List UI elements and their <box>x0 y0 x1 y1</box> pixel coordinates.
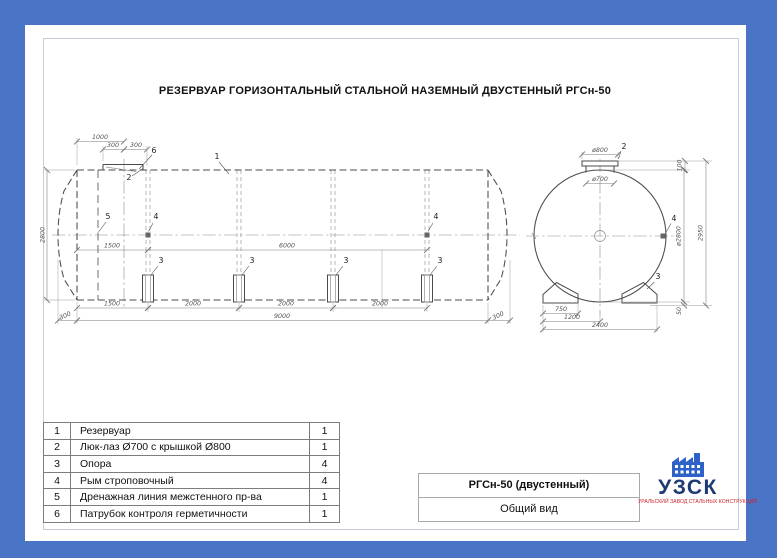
dim-sp1500: 1500 <box>104 301 120 308</box>
callout-4: 4 <box>434 212 439 221</box>
title-block: РГСн-50 (двустенный) Общий вид <box>418 473 640 522</box>
part-number: 3 <box>44 456 71 473</box>
part-number: 2 <box>44 439 71 456</box>
callout-3: 3 <box>344 256 349 265</box>
part-name: Опора <box>71 456 310 473</box>
callout-3: 3 <box>159 256 164 265</box>
dimensions-side: 1000 300 300 2800 1500 6000 <box>40 134 510 324</box>
part-qty: 1 <box>310 439 340 456</box>
dim-800: ø800 <box>591 147 608 154</box>
callout-5: 5 <box>106 212 111 221</box>
drawing-title: РЕЗЕРВУАР ГОРИЗОНТАЛЬНЫЙ СТАЛЬНОЙ НАЗЕМН… <box>60 85 710 97</box>
dim-750: 750 <box>555 306 567 313</box>
dim-300b: 300 <box>130 142 142 149</box>
callout-2-end: 2 <box>622 142 627 151</box>
dim-sp2000b: 2000 <box>278 301 294 308</box>
support-left-end-view <box>543 283 578 304</box>
factory-icon <box>670 451 706 477</box>
part-number: 5 <box>44 489 71 506</box>
callout-4-end: 4 <box>672 214 677 223</box>
dim-inner-1500: 1500 <box>104 243 120 250</box>
supports-side <box>143 275 433 302</box>
dim-300a: 300 <box>107 142 119 149</box>
callout-leaders-side <box>99 155 438 275</box>
part-number: 1 <box>44 423 71 440</box>
table-row: 1 Резервуар 1 <box>44 423 340 440</box>
technical-drawing: 6 1 2 5 4 4 3 3 3 3 1000 300 300 <box>40 125 730 355</box>
support-right-end-view <box>622 283 657 304</box>
part-name: Дренажная линия межстенного пр-ва <box>71 489 310 506</box>
dimensions-end: ø800 ø700 100 ø2800 50 2950 <box>543 147 712 332</box>
part-name: Рым строповочный <box>71 472 310 489</box>
support-axes <box>146 170 429 275</box>
dim-sp2000a: 2000 <box>185 301 201 308</box>
dim-300-right: 300 <box>491 310 505 321</box>
table-row: 5 Дренажная линия межстенного пр-ва 1 <box>44 489 340 506</box>
table-row: 6 Патрубок контроля герметичности 1 <box>44 505 340 522</box>
dim-100: 100 <box>677 159 684 171</box>
part-qty: 1 <box>310 505 340 522</box>
dim-sp2000c: 2000 <box>372 301 388 308</box>
part-name: Резервуар <box>71 423 310 440</box>
callout-6: 6 <box>152 146 157 155</box>
table-row: 4 Рым строповочный 4 <box>44 472 340 489</box>
page-background: РЕЗЕРВУАР ГОРИЗОНТАЛЬНЫЙ СТАЛЬНОЙ НАЗЕМН… <box>0 0 777 558</box>
table-row: 2 Люк-лаз Ø700 с крышкой Ø800 1 <box>44 439 340 456</box>
leader-4 <box>666 224 671 233</box>
part-qty: 4 <box>310 472 340 489</box>
dim-700: ø700 <box>591 176 608 183</box>
dim-d2800: ø2800 <box>676 226 683 247</box>
side-view: 6 1 2 5 4 4 3 3 3 3 1000 300 300 <box>40 134 520 324</box>
dim-2400: 2400 <box>592 322 608 329</box>
title-block-model: РГСн-50 (двустенный) <box>419 474 639 498</box>
table-row: 3 Опора 4 <box>44 456 340 473</box>
part-qty: 4 <box>310 456 340 473</box>
callout-4: 4 <box>154 212 159 221</box>
end-view: 2 4 3 ø800 ø700 100 ø2800 <box>526 142 712 332</box>
lifting-lug-left <box>146 233 151 238</box>
parts-table: 1 Резервуар 1 2 Люк-лаз Ø700 с крышкой Ø… <box>43 422 340 523</box>
dim-2950: 2950 <box>698 225 705 241</box>
leader-3 <box>647 282 655 289</box>
part-number: 4 <box>44 472 71 489</box>
part-number: 6 <box>44 505 71 522</box>
part-qty: 1 <box>310 489 340 506</box>
callout-2: 2 <box>127 173 132 182</box>
lifting-lug-right <box>425 233 430 238</box>
part-qty: 1 <box>310 423 340 440</box>
dim-1000: 1000 <box>92 134 108 141</box>
dim-6000: 6000 <box>279 243 295 250</box>
dim-300-left: 300 <box>58 310 72 321</box>
callout-1: 1 <box>215 152 220 161</box>
title-block-view-name: Общий вид <box>419 498 639 521</box>
part-name: Люк-лаз Ø700 с крышкой Ø800 <box>71 439 310 456</box>
dim-1200: 1200 <box>564 314 580 321</box>
logo-text: УЗСК <box>638 478 738 498</box>
dim-50: 50 <box>676 307 683 315</box>
callout-3: 3 <box>250 256 255 265</box>
dim-9000: 9000 <box>274 313 290 320</box>
leader-2 <box>619 151 622 159</box>
company-logo: УЗСК УРАЛЬСКИЙ ЗАВОД СТАЛЬНЫХ КОНСТРУКЦИ… <box>638 451 738 505</box>
dim-2800: 2800 <box>40 227 47 243</box>
lifting-lug-end <box>661 234 666 239</box>
part-name: Патрубок контроля герметичности <box>71 505 310 522</box>
callout-3: 3 <box>438 256 443 265</box>
logo-tagline: УРАЛЬСКИЙ ЗАВОД СТАЛЬНЫХ КОНСТРУКЦИЙ <box>638 499 738 505</box>
callout-3-end: 3 <box>656 272 661 281</box>
